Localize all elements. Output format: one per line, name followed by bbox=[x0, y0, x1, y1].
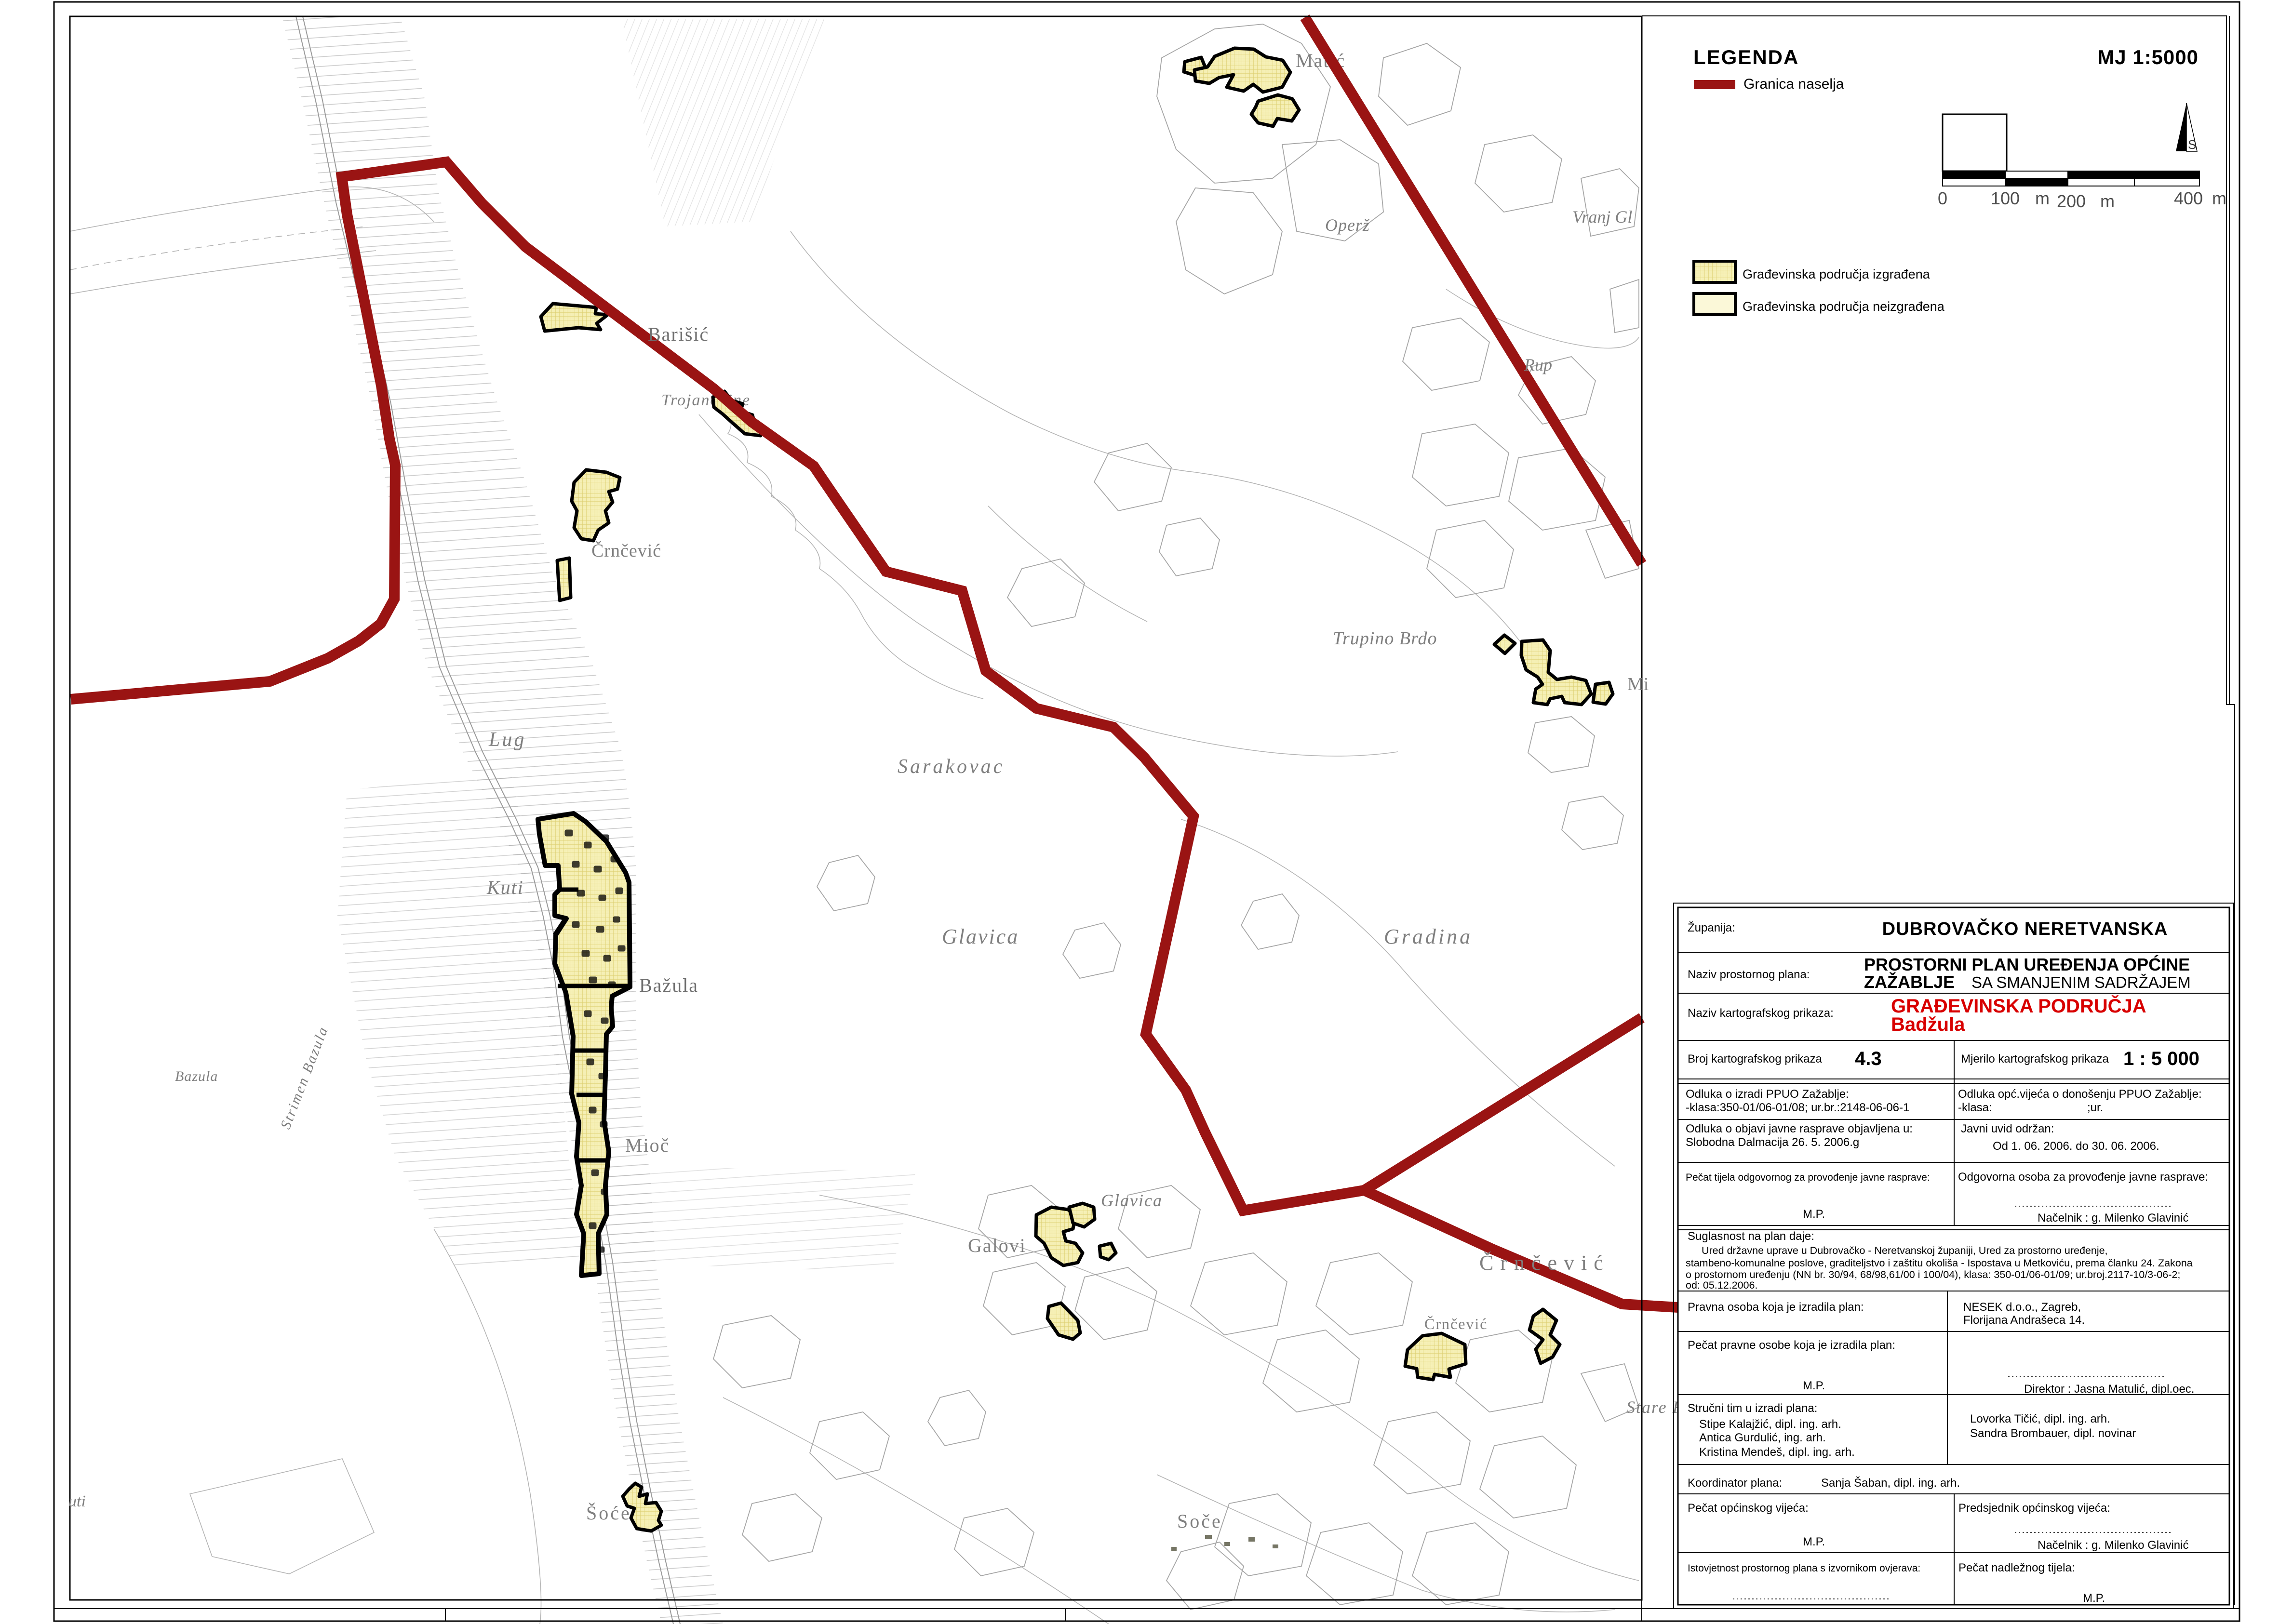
svg-text:Pečat nadležnog tijela:: Pečat nadležnog tijela: bbox=[1958, 1561, 2075, 1574]
svg-text:100: 100 bbox=[1991, 188, 2020, 208]
svg-text:Direktor : Jasna Matulić, dipl: Direktor : Jasna Matulić, dipl.oec. bbox=[2024, 1383, 2194, 1396]
svg-text:Javni uvid održan:: Javni uvid održan: bbox=[1961, 1122, 2054, 1135]
svg-text:Glavica: Glavica bbox=[1101, 1191, 1163, 1210]
svg-text:Črnčević: Črnčević bbox=[591, 541, 661, 561]
svg-text:Kristina Mendeš, dipl. ing. ar: Kristina Mendeš, dipl. ing. arh. bbox=[1699, 1446, 1855, 1459]
svg-text:Odgovorna osoba za provođenje: Odgovorna osoba za provođenje javne rasp… bbox=[1958, 1171, 2208, 1184]
svg-text:Stručni tim u izradi plana:: Stručni tim u izradi plana: bbox=[1688, 1402, 1817, 1415]
svg-text:Odluka opć.vijeća o donošenju: Odluka opć.vijeća o donošenju PPUO Zažab… bbox=[1958, 1088, 2202, 1101]
svg-text:4.3: 4.3 bbox=[1855, 1048, 1882, 1069]
svg-text:Istovjetnost prostornog plana: Istovjetnost prostornog plana s izvornik… bbox=[1688, 1563, 1920, 1574]
svg-text:LEGENDA: LEGENDA bbox=[1693, 46, 1799, 68]
svg-text:DUBROVAČKO NERETVANSKA: DUBROVAČKO NERETVANSKA bbox=[1882, 918, 2168, 939]
svg-text:Gradina: Gradina bbox=[1384, 925, 1473, 948]
svg-text:Barišić: Barišić bbox=[648, 323, 709, 345]
svg-text:Predsjednik općinskog vijeća:: Predsjednik općinskog vijeća: bbox=[1958, 1502, 2110, 1515]
svg-text:Slobodna Dalmacija 26. 5. 2006: Slobodna Dalmacija 26. 5. 2006.g bbox=[1686, 1136, 1859, 1149]
svg-text:Operž: Operž bbox=[1325, 215, 1370, 235]
svg-text:Broj kartografskog prikaza: Broj kartografskog prikaza bbox=[1688, 1052, 1822, 1065]
svg-text:-klasa:350-01/06-01/08; ur.br.: -klasa:350-01/06-01/08; ur.br.:2148-06-0… bbox=[1686, 1101, 1909, 1114]
svg-text:M.P.: M.P. bbox=[1803, 1208, 1825, 1221]
svg-text:o prostornom uređenju (NN br.: o prostornom uređenju (NN br. 30/94, 68/… bbox=[1686, 1269, 2180, 1280]
svg-text:0: 0 bbox=[1938, 188, 1947, 208]
svg-text:Črnčević: Črnčević bbox=[1479, 1251, 1610, 1275]
svg-text:M.P.: M.P. bbox=[1803, 1535, 1825, 1548]
svg-text:Pečat tijela odgovornog za pro: Pečat tijela odgovornog za provođenje ja… bbox=[1686, 1172, 1930, 1183]
svg-text:Odluka o izradi PPUO Zažablje:: Odluka o izradi PPUO Zažablje: bbox=[1686, 1088, 1849, 1101]
svg-text:;ur.: ;ur. bbox=[2087, 1101, 2103, 1114]
svg-text:Bazula: Bazula bbox=[175, 1068, 218, 1084]
svg-text:M.P.: M.P. bbox=[1803, 1379, 1825, 1392]
svg-text:Naziv prostornog plana:: Naziv prostornog plana: bbox=[1688, 968, 1810, 981]
svg-text:Trupino Brdo: Trupino Brdo bbox=[1333, 628, 1437, 649]
svg-text:m: m bbox=[2100, 191, 2115, 211]
svg-text:Sanja Šaban, dipl. ing. arh.: Sanja Šaban, dipl. ing. arh. bbox=[1821, 1476, 1960, 1490]
svg-text:uti: uti bbox=[68, 1492, 86, 1510]
svg-text:Soče: Soče bbox=[1177, 1510, 1222, 1532]
svg-text:Pečat općinskog vijeća:: Pečat općinskog vijeća: bbox=[1688, 1502, 1809, 1515]
svg-text:Kuti: Kuti bbox=[486, 877, 524, 898]
svg-text:Badžula: Badžula bbox=[1891, 1014, 1965, 1035]
svg-text:Koordinator plana:: Koordinator plana: bbox=[1688, 1477, 1782, 1490]
svg-text:Šoće: Šoće bbox=[586, 1502, 631, 1524]
svg-text:Načelnik : g. Milenko Glavinić: Načelnik : g. Milenko Glavinić bbox=[2038, 1211, 2188, 1225]
svg-text:Pravna osoba koja je izradila: Pravna osoba koja je izradila plan: bbox=[1688, 1301, 1864, 1314]
svg-text:SA SMANJENIM SADRŽAJEM: SA SMANJENIM SADRŽAJEM bbox=[1971, 973, 2191, 991]
svg-text:M.P.: M.P. bbox=[2083, 1592, 2105, 1605]
svg-text:Stipe Kalajžić, dipl. ing. arh: Stipe Kalajžić, dipl. ing. arh. bbox=[1699, 1418, 1841, 1431]
svg-text:Lovorka Tičić, dipl. ing. arh.: Lovorka Tičić, dipl. ing. arh. bbox=[1970, 1412, 2110, 1425]
svg-text:Vranj Gl: Vranj Gl bbox=[1572, 207, 1632, 226]
svg-text:Črnčević: Črnčević bbox=[1424, 1315, 1488, 1332]
svg-text:Glavica: Glavica bbox=[942, 925, 1019, 948]
svg-text:Od 1. 06. 2006. do 30. 06. 200: Od 1. 06. 2006. do 30. 06. 2006. bbox=[1993, 1140, 2159, 1153]
svg-text:PROSTORNI PLAN UREĐENJA OPĆINE: PROSTORNI PLAN UREĐENJA OPĆINE bbox=[1864, 954, 2190, 974]
svg-text:Lug: Lug bbox=[488, 729, 526, 751]
svg-text:Bažula: Bažula bbox=[639, 974, 698, 996]
svg-text:m: m bbox=[2212, 188, 2226, 208]
svg-text:Suglasnost na plan daje:: Suglasnost na plan daje: bbox=[1688, 1230, 1814, 1243]
svg-text:Naziv kartografskog prikaza:: Naziv kartografskog prikaza: bbox=[1688, 1007, 1834, 1020]
svg-text:Galovi: Galovi bbox=[968, 1235, 1026, 1256]
svg-text:Mi: Mi bbox=[1627, 674, 1649, 694]
svg-text:Sarakovac: Sarakovac bbox=[898, 756, 1005, 778]
svg-text:NESEK d.o.o., Zagreb,: NESEK d.o.o., Zagreb, bbox=[1963, 1301, 2081, 1314]
svg-text:MJ 1:5000: MJ 1:5000 bbox=[2097, 46, 2199, 68]
svg-text:Antica Gurdulić, ing. arh.: Antica Gurdulić, ing. arh. bbox=[1699, 1431, 1826, 1444]
svg-text:Građevinska područja neizgrađe: Građevinska područja neizgrađena bbox=[1743, 299, 1945, 314]
svg-text:Granica naselja: Granica naselja bbox=[1743, 76, 1844, 92]
svg-text:Građevinska područja izgrađena: Građevinska područja izgrađena bbox=[1743, 267, 1931, 281]
svg-text:-klasa:: -klasa: bbox=[1958, 1101, 1992, 1114]
svg-text:200: 200 bbox=[2057, 191, 2086, 211]
svg-text:Načelnik : g. Milenko Glavinić: Načelnik : g. Milenko Glavinić bbox=[2038, 1539, 2188, 1552]
svg-text:ZAŽABLJE: ZAŽABLJE bbox=[1864, 972, 1955, 992]
svg-text:Sandra Brombauer, dipl. novina: Sandra Brombauer, dipl. novinar bbox=[1970, 1427, 2136, 1440]
svg-text:Rup: Rup bbox=[1524, 355, 1552, 374]
svg-text:S: S bbox=[2188, 137, 2196, 152]
svg-text:Mjerilo kartografskog prikaza: Mjerilo kartografskog prikaza bbox=[1961, 1052, 2109, 1065]
svg-text:Ured državne uprave u Dubrovač: Ured državne uprave u Dubrovačko - Neret… bbox=[1702, 1245, 2108, 1256]
svg-text:400: 400 bbox=[2174, 188, 2203, 208]
svg-text:1 : 5 000: 1 : 5 000 bbox=[2123, 1048, 2199, 1069]
svg-text:m: m bbox=[2035, 188, 2050, 208]
svg-text:Županija:: Županija: bbox=[1688, 921, 1735, 934]
svg-text:od: 05.12.2006.: od: 05.12.2006. bbox=[1686, 1279, 1757, 1291]
svg-text:Odluka o objavi javne rasprave: Odluka o objavi javne rasprave objavljen… bbox=[1686, 1122, 1913, 1135]
svg-text:Mioč: Mioč bbox=[625, 1134, 670, 1156]
svg-text:Florijana Andrašeca 14.: Florijana Andrašeca 14. bbox=[1963, 1314, 2085, 1327]
svg-text:stambeno-komunalne poslove, gr: stambeno-komunalne poslove, graditeljstv… bbox=[1686, 1257, 2193, 1269]
svg-text:Stare R: Stare R bbox=[1626, 1398, 1684, 1417]
svg-text:Pečat pravne osobe koja je izr: Pečat pravne osobe koja je izradila plan… bbox=[1688, 1339, 1895, 1352]
